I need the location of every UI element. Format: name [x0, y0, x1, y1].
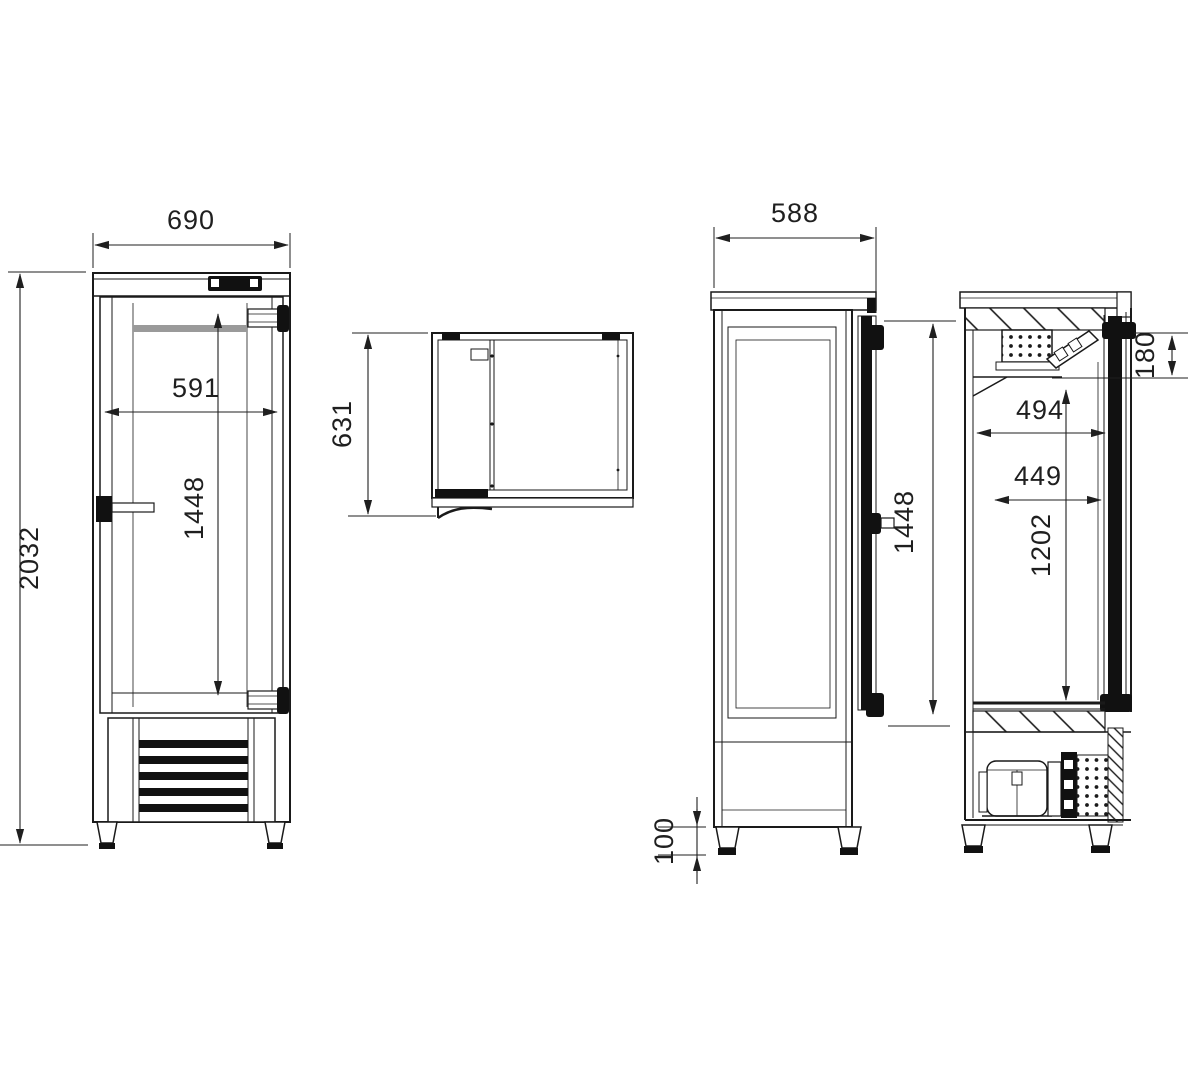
side-middle-hinge-icon — [864, 513, 881, 534]
drawing-svg: 690 2032 591 1448 — [0, 0, 1200, 1080]
dim-label-overall-width: 690 — [167, 205, 215, 235]
ventilation-grille — [108, 718, 275, 822]
rear-bracket-left — [442, 332, 460, 340]
dim-label-door-height-front: 1448 — [179, 476, 209, 540]
top-insulation-hatch — [965, 308, 1105, 330]
condenser — [1061, 752, 1108, 818]
dim-label-door-height-side: 1448 — [889, 490, 919, 554]
side-bottom-hinge-icon — [866, 693, 884, 717]
dim-label-evaporator-zone: 180 — [1130, 331, 1160, 379]
dim-label-depth-with-handle: 631 — [327, 400, 357, 448]
controller-display — [208, 276, 262, 291]
top-view-latch-plate — [471, 349, 488, 360]
door-top-gray-band — [133, 325, 247, 332]
dim-label-interior-depth-upper: 494 — [1016, 395, 1064, 425]
technical-drawing-canvas: 690 2032 591 1448 — [0, 0, 1200, 1080]
compressor — [979, 761, 1052, 816]
dim-label-foot-height: 100 — [649, 817, 679, 865]
side-top-hinge-icon — [866, 325, 884, 350]
dim-label-interior-height: 1202 — [1026, 513, 1056, 577]
dim-label-overall-height: 2032 — [14, 526, 44, 590]
dim-label-door-width: 591 — [172, 373, 220, 403]
dim-label-interior-depth-lower: 449 — [1014, 461, 1062, 491]
bottom-insulation-hatch — [973, 711, 1105, 732]
rear-vent-hatch — [1108, 728, 1123, 822]
dim-label-depth: 588 — [771, 198, 819, 228]
rear-bracket-right — [602, 332, 620, 340]
